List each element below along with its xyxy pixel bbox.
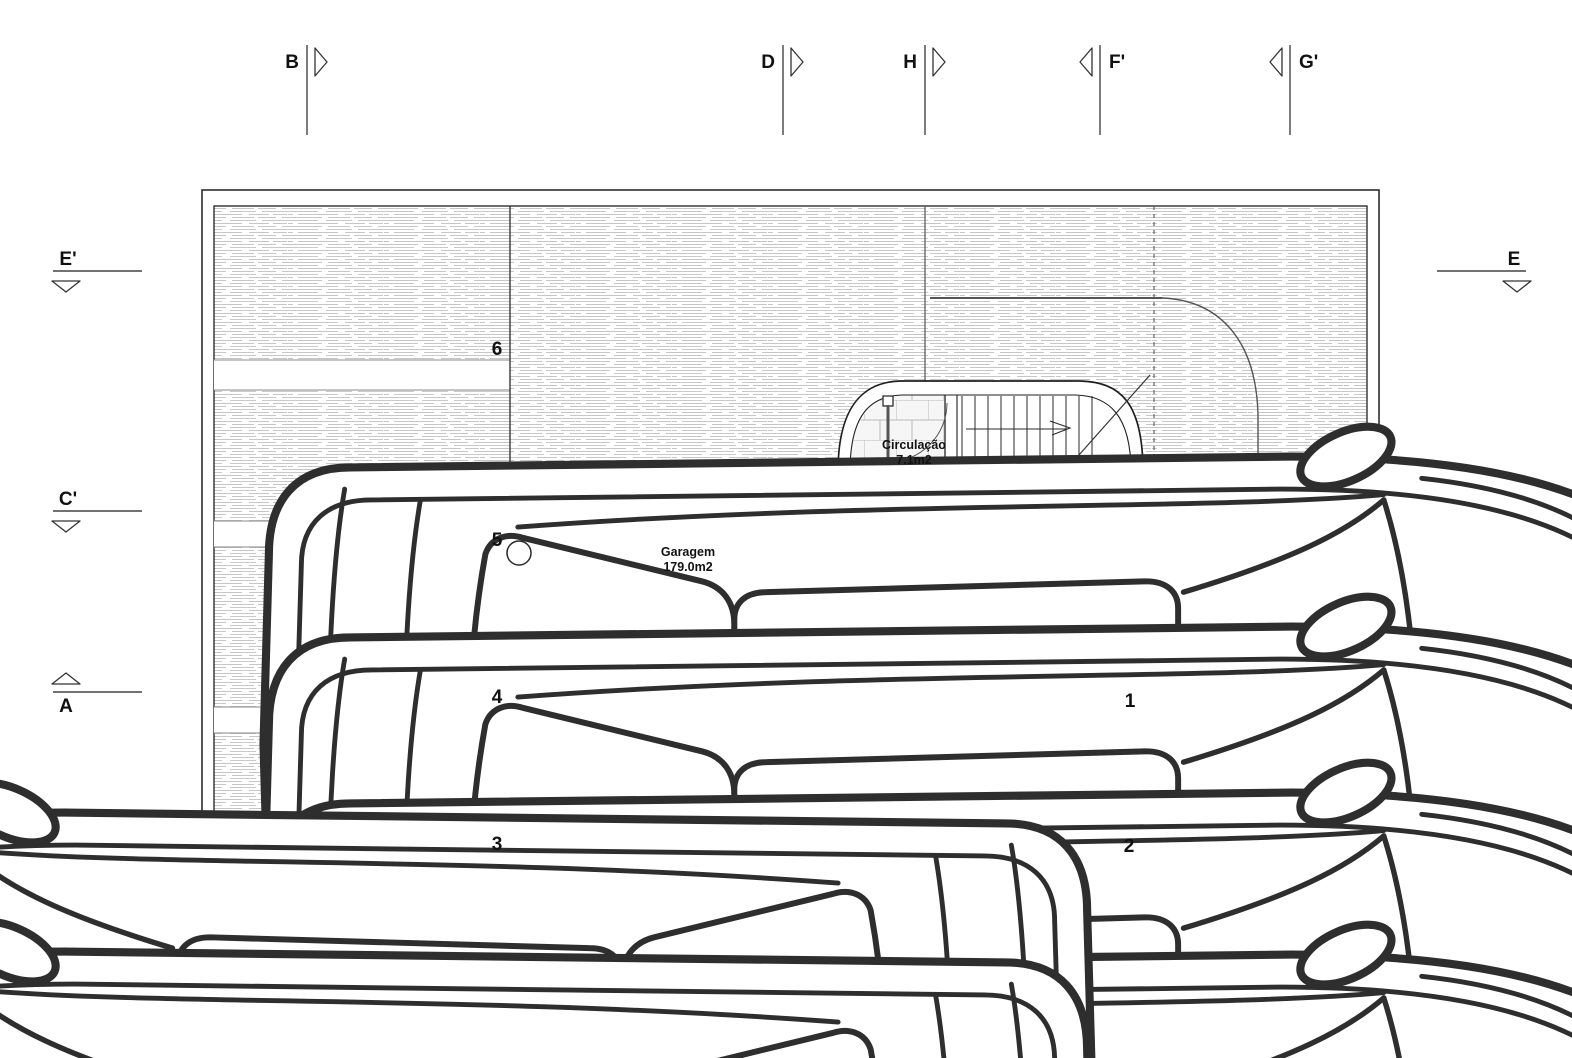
section-label: E' (59, 249, 76, 270)
section-marker-E-prime: E' (52, 249, 142, 292)
section-marker-B: B (285, 45, 327, 135)
section-arrow-icon (52, 521, 80, 532)
drawing-sheet: B D H F' G' B' (0, 0, 1572, 1058)
section-arrow-icon (791, 48, 803, 76)
section-label: C' (59, 489, 77, 510)
stall-number-4: 4 (492, 687, 503, 708)
section-arrow-icon (52, 673, 80, 684)
section-marker-H: H (903, 45, 945, 135)
stall-divider (214, 360, 510, 390)
stall-number-6: 6 (492, 339, 503, 360)
section-arrow-icon (52, 281, 80, 292)
section-marker-E: E (1437, 249, 1531, 292)
section-label: F' (1109, 52, 1125, 73)
section-label: E (1508, 249, 1521, 270)
section-marker-D: D (761, 45, 803, 135)
section-label: H (903, 52, 917, 73)
section-marker-A: A (52, 673, 142, 717)
door-hinge-post (883, 396, 893, 406)
stall-number-2: 2 (1124, 836, 1135, 857)
section-arrow-icon (1503, 281, 1531, 292)
section-label: B (285, 52, 299, 73)
section-label: G' (1299, 52, 1318, 73)
section-marker-G-prime: G' (1270, 45, 1318, 135)
circulation-room-name: Circulação (882, 438, 946, 452)
section-marker-C-prime: C' (52, 489, 142, 532)
garage-room-name: Garagem (661, 545, 715, 559)
section-arrow-icon (933, 48, 945, 76)
section-arrow-icon (1080, 48, 1092, 76)
stall-number-1: 1 (1125, 691, 1136, 712)
floor-plan-canvas: B D H F' G' B' (0, 0, 1572, 1058)
section-arrow-icon (315, 48, 327, 76)
section-marker-F-prime: F' (1080, 45, 1125, 135)
section-label: A (59, 696, 73, 717)
section-arrow-icon (1270, 48, 1282, 76)
circulation-room-area: 7.1m2 (896, 453, 931, 467)
stall-number-5: 5 (492, 530, 503, 551)
column-circle (507, 541, 531, 565)
section-label: D (761, 52, 775, 73)
stall-number-3: 3 (492, 834, 503, 855)
garage-room-area: 179.0m2 (663, 560, 712, 574)
